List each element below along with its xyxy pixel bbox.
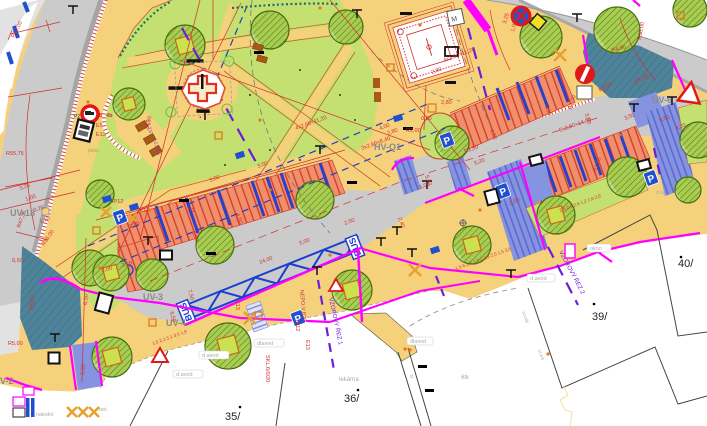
svg-text:d.avod: d.avod — [202, 353, 219, 359]
svg-text:nakolni: nakolni — [36, 412, 53, 418]
svg-text:SKL.6/0/20: SKL.6/0/20 — [264, 355, 270, 382]
svg-text:R5,00: R5,00 — [29, 295, 36, 310]
svg-text:d-lu: d-lu — [656, 190, 665, 196]
svg-text:36/: 36/ — [344, 393, 360, 405]
svg-text:P2: P2 — [188, 208, 195, 214]
svg-text:d.avod: d.avod — [176, 372, 193, 378]
svg-text:2,80: 2,80 — [441, 100, 452, 106]
svg-text:okno: okno — [590, 246, 602, 252]
svg-text:dlavod: dlavod — [410, 339, 426, 345]
svg-text:R2,00: R2,00 — [406, 128, 421, 134]
svg-text:0,60: 0,60 — [421, 116, 432, 122]
svg-text:IP12: IP12 — [138, 208, 149, 214]
svg-text:UV-3: UV-3 — [143, 292, 163, 302]
svg-text:8,50: 8,50 — [12, 258, 23, 264]
svg-text:P2: P2 — [74, 114, 80, 120]
svg-text:R5,00: R5,00 — [8, 341, 23, 347]
svg-text:lekárna: lekárna — [339, 377, 359, 383]
svg-text:6,50: 6,50 — [80, 364, 87, 375]
svg-text:E13: E13 — [234, 300, 240, 310]
svg-text:bet.: bet. — [99, 407, 109, 413]
svg-text:39/: 39/ — [592, 311, 608, 323]
svg-text:E13: E13 — [96, 132, 106, 138]
svg-text:6,50: 6,50 — [83, 294, 90, 305]
svg-text:6tk: 6tk — [461, 375, 470, 381]
svg-text:E5: E5 — [96, 123, 103, 129]
svg-text:dlavod: dlavod — [257, 341, 273, 347]
svg-text:d.avod: d.avod — [530, 276, 547, 282]
svg-text:d.: d. — [410, 374, 414, 380]
svg-text:R55,75: R55,75 — [6, 151, 24, 157]
svg-text:E13: E13 — [304, 340, 310, 350]
svg-text:pirko: pirko — [88, 148, 99, 154]
svg-text:IP12: IP12 — [112, 199, 123, 205]
svg-text:40/: 40/ — [678, 258, 694, 270]
svg-text:IP12: IP12 — [294, 320, 300, 331]
svg-text:V-2: V-2 — [0, 376, 14, 386]
svg-text:35/: 35/ — [225, 411, 241, 423]
